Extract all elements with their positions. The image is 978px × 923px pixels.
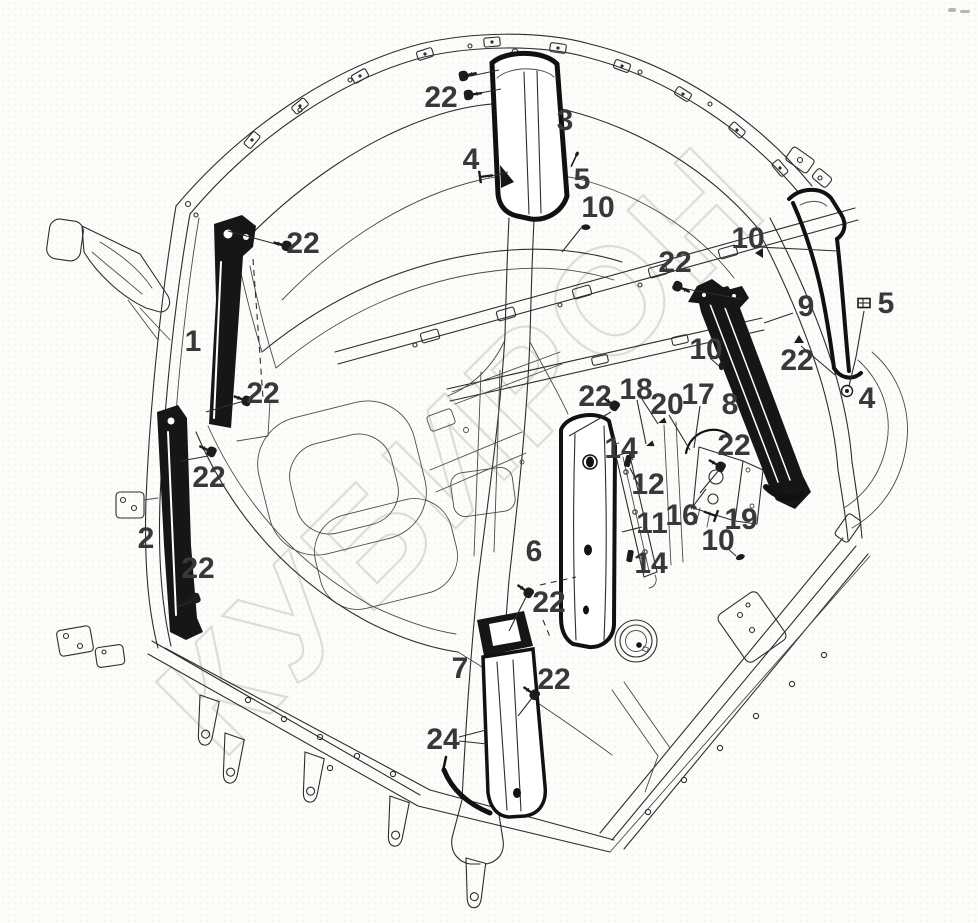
callout-22: 22 (192, 461, 225, 494)
leader-line (856, 311, 864, 357)
dashed-reference-line (543, 620, 550, 637)
leader-line (459, 741, 487, 744)
triclip-icon (794, 335, 804, 343)
callout-14: 14 (604, 432, 638, 465)
callout-22: 22 (532, 586, 565, 619)
callout-20: 20 (650, 388, 683, 421)
callout-22: 22 (537, 663, 570, 696)
callout-9: 9 (798, 290, 815, 323)
callout-22: 22 (658, 246, 691, 279)
darkclip-icon (626, 550, 634, 563)
callout-11: 11 (636, 507, 668, 540)
leader-line (694, 406, 700, 448)
callout-4: 4 (463, 143, 480, 176)
cab-frame-exploded-diagram: КУБИРОН (0, 0, 978, 923)
hookclip-icon (736, 554, 745, 560)
screw-icon (463, 88, 482, 101)
callout-6: 6 (526, 535, 543, 568)
callout-1: 1 (185, 325, 202, 358)
callout-10: 10 (689, 333, 722, 366)
callout-22: 22 (780, 344, 813, 377)
rectclip-icon (858, 299, 870, 308)
flat-icon (478, 169, 494, 183)
left-support-arm (45, 218, 170, 340)
callout-2: 2 (138, 522, 155, 555)
callout-17: 17 (681, 378, 714, 411)
corner-smudge (948, 8, 970, 13)
callout-12: 12 (631, 468, 664, 501)
callout-22: 22 (246, 377, 279, 410)
callout-8: 8 (722, 388, 739, 421)
speaker-ring (615, 620, 657, 662)
callout-22: 22 (717, 429, 750, 462)
parts-diagram-page: КУБИРОН (0, 0, 978, 923)
callout-24: 24 (426, 723, 460, 756)
right-lower-plate (716, 589, 789, 664)
grommet-icon (842, 386, 853, 397)
left-bracket-plate (116, 492, 158, 518)
callout-16: 16 (665, 499, 698, 532)
callout-22: 22 (286, 227, 319, 260)
callout-22: 22 (424, 81, 457, 114)
callout-3: 3 (557, 104, 574, 137)
callout-10: 10 (701, 524, 734, 557)
callout-18: 18 (619, 373, 652, 406)
callout-22: 22 (578, 380, 611, 413)
flag-icon (645, 440, 655, 448)
callout-4: 4 (859, 382, 876, 415)
sill-end-brackets (56, 625, 125, 668)
flat-icon (702, 506, 720, 523)
callout-22: 22 (181, 552, 214, 585)
callout-10: 10 (731, 222, 764, 255)
callout-10: 10 (581, 191, 614, 224)
part-7-pillar-trim (443, 611, 545, 817)
callout-14: 14 (634, 547, 668, 580)
callout-7: 7 (452, 652, 469, 685)
leader-line (637, 400, 646, 444)
leader-line (459, 730, 486, 737)
leader-line (764, 313, 793, 323)
callout-5: 5 (878, 287, 895, 320)
